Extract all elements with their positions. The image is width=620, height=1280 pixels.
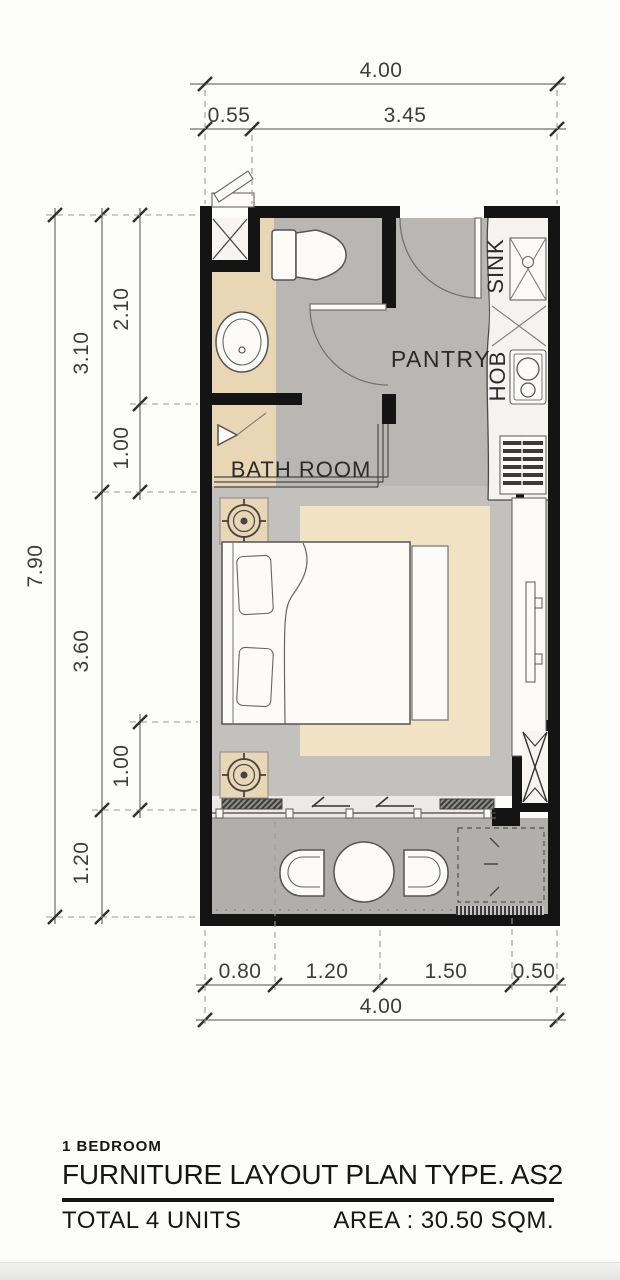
kitchen-sink-unit (510, 238, 546, 300)
wall-bath-mid (200, 393, 302, 405)
wall-balcony-bottom (200, 914, 560, 926)
total-units-label: TOTAL 4 UNITS (62, 1207, 241, 1235)
dim-left-total: 7.90 (24, 545, 47, 588)
toilet-tank (272, 230, 296, 280)
room-label-sink: SINK (483, 238, 508, 293)
balcony-chair-left (280, 850, 324, 896)
bathroom-door-leaf (310, 304, 386, 310)
refrigerator (500, 436, 546, 494)
wall-shaft-bottom (200, 260, 260, 272)
floor-plan-page: 4.00 0.55 3.45 7.90 3.10 3.60 1.20 2.10 … (0, 0, 620, 1280)
dim-bottom-seg-4: 0.50 (513, 960, 556, 983)
dim-bottom-seg-2: 1.20 (306, 960, 349, 983)
dim-top-seg-1: 0.55 (208, 104, 251, 127)
wall-top-left (248, 206, 400, 218)
dim-left-mid-2: 3.60 (70, 630, 93, 673)
balcony-chair-right (404, 850, 448, 896)
pillow-top (237, 555, 274, 615)
unit-type-label: 1 BEDROOM (62, 1138, 162, 1155)
entry-door-leaf (475, 218, 481, 298)
room-label-hob: HOB (485, 351, 510, 402)
wall-left (200, 206, 212, 926)
wash-basin (216, 312, 268, 372)
room-label-bathroom: BATH ROOM (231, 457, 372, 482)
balcony-table (334, 842, 394, 902)
tv (526, 582, 535, 682)
dim-top-total: 4.00 (360, 59, 403, 82)
shaft-bottom-right (522, 731, 548, 803)
louver-door-flap (212, 171, 254, 207)
track-jamb (216, 809, 223, 818)
dim-bottom-seg-1: 0.80 (219, 960, 262, 983)
track-jamb (286, 809, 293, 818)
dim-bottom-seg-3: 1.50 (425, 960, 468, 983)
track-jamb (414, 809, 421, 818)
pillow-bottom (237, 647, 274, 707)
scan-artifact-band (0, 1262, 620, 1280)
dim-bottom-total: 4.00 (360, 995, 403, 1018)
wall-right (548, 206, 560, 926)
title-underline (62, 1198, 554, 1202)
sliding-panel-left (222, 799, 282, 809)
wall-bath-door-jamb (382, 394, 396, 424)
area-label: AREA : 30.50 SQM. (333, 1207, 554, 1235)
track-jamb (346, 809, 353, 818)
faucet-icon (523, 257, 534, 268)
dim-left-mid-3: 1.20 (70, 842, 93, 885)
tv-bracket-bottom (535, 654, 542, 664)
wall-balcony-stub (492, 808, 520, 826)
dim-top-seg-2: 3.45 (384, 104, 427, 127)
track-jamb (484, 809, 491, 818)
dim-left-inner-3: 1.00 (110, 745, 133, 788)
balcony-louver-strip (456, 906, 544, 915)
bathroom-vanity-counter (212, 272, 276, 486)
foot-bench (412, 546, 448, 720)
sliding-panel-right (440, 799, 494, 809)
dim-left-inner-2: 1.00 (110, 427, 133, 470)
dim-left-mid-1: 3.10 (70, 332, 93, 375)
dim-left-inner-1: 2.10 (110, 288, 133, 331)
tv-bracket-top (535, 598, 542, 608)
floor-plan-drawing: 4.00 0.55 3.45 7.90 3.10 3.60 1.20 2.10 … (0, 0, 620, 1280)
wall-bath-pantry (382, 206, 396, 308)
room-label-pantry: PANTRY (391, 346, 491, 372)
kitchen-hob-unit (510, 350, 546, 404)
plan-title: FURNITURE LAYOUT PLAN TYPE. AS2 (62, 1159, 563, 1191)
